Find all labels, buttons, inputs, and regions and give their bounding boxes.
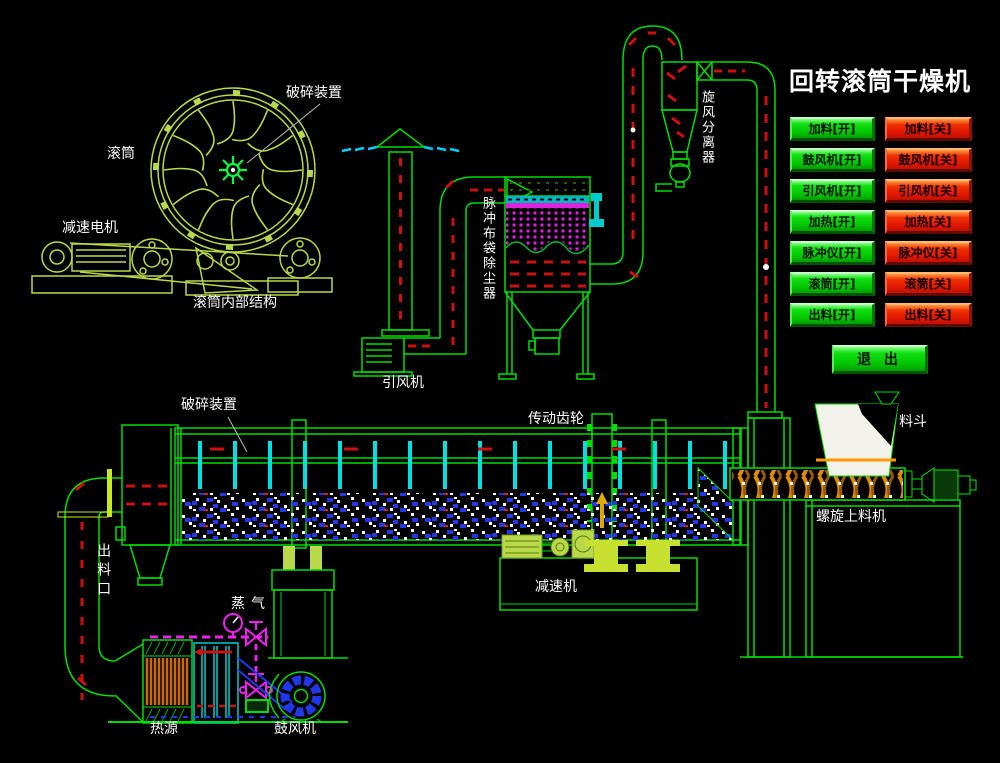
collector-flow-dashes <box>510 262 586 286</box>
pipe-flange <box>107 469 112 517</box>
label-pulse-bag-filter: 脉冲布袋除尘器 <box>479 196 494 308</box>
discharge-off-button[interactable]: 出料[关] <box>885 303 972 327</box>
drum-paddles <box>198 441 727 489</box>
label-heat-source: 热源 <box>150 721 178 737</box>
filter-bags <box>506 196 589 258</box>
pipe-dot <box>763 264 769 270</box>
label-crusher-top: 破碎装置 <box>286 85 342 101</box>
draft-fan-off-button[interactable]: 引风机[关] <box>885 179 972 203</box>
blower-off-button[interactable]: 鼓风机[关] <box>885 148 972 172</box>
label-drive-gear: 传动齿轮 <box>528 411 584 427</box>
pulse-valve-device <box>589 193 604 227</box>
label-drum-internal: 滚筒内部结构 <box>193 295 277 311</box>
process-schematic <box>0 0 1000 763</box>
gear-motor-assembly <box>32 238 332 295</box>
pipe-dot <box>631 128 636 133</box>
crusher-gear-icon <box>219 156 247 184</box>
steam-valves <box>150 614 272 712</box>
hmi-screen: 破碎装置 滚筒 减速电机 滚筒内部结构 脉冲布袋除尘器 旋风分离器 引风机 破碎… <box>0 0 1000 763</box>
blower-on-button[interactable]: 鼓风机[开] <box>790 148 875 172</box>
feed-on-button[interactable]: 加料[开] <box>790 117 875 141</box>
reducer-assembly <box>500 530 697 610</box>
label-cyclone-separator: 旋风分离器 <box>698 90 713 172</box>
label-induced-draft-fan: 引风机 <box>382 375 424 391</box>
feed-off-button[interactable]: 加料[关] <box>885 117 972 141</box>
label-crusher-drum: 破碎装置 <box>181 397 237 413</box>
leader-line <box>247 104 320 163</box>
drum-material <box>182 493 733 540</box>
heating-off-button[interactable]: 加热[关] <box>885 210 972 234</box>
heat-source <box>143 640 238 723</box>
label-hopper: 料斗 <box>899 414 927 430</box>
label-steam: 蒸气 <box>231 596 271 612</box>
label-discharge-port: 出料口 <box>95 543 111 613</box>
blower <box>270 672 326 722</box>
drum-on-button[interactable]: 滚筒[开] <box>790 272 875 296</box>
label-screw-feeder: 螺旋上料机 <box>816 509 886 525</box>
discharge-on-button[interactable]: 出料[开] <box>790 303 875 327</box>
pulse-meter-on-button[interactable]: 脉冲仪[开] <box>790 241 875 265</box>
cyclone-separator <box>590 26 782 418</box>
drum-off-button[interactable]: 滚筒[关] <box>885 272 972 296</box>
label-reducer: 减速机 <box>535 579 577 595</box>
heating-on-button[interactable]: 加热[开] <box>790 210 875 234</box>
feed-hopper <box>815 392 899 476</box>
page-title: 回转滚筒干燥机 <box>789 62 979 98</box>
exit-button[interactable]: 退 出 <box>832 345 928 374</box>
exhaust-stack <box>377 129 429 336</box>
drum-support <box>272 546 334 658</box>
label-drum-section: 滚筒 <box>107 146 135 162</box>
label-gear-motor: 减速电机 <box>62 220 118 236</box>
pulse-meter-off-button[interactable]: 脉冲仪[关] <box>885 241 972 265</box>
label-blower: 鼓风机 <box>274 721 316 737</box>
draft-fan-on-button[interactable]: 引风机[开] <box>790 179 875 203</box>
